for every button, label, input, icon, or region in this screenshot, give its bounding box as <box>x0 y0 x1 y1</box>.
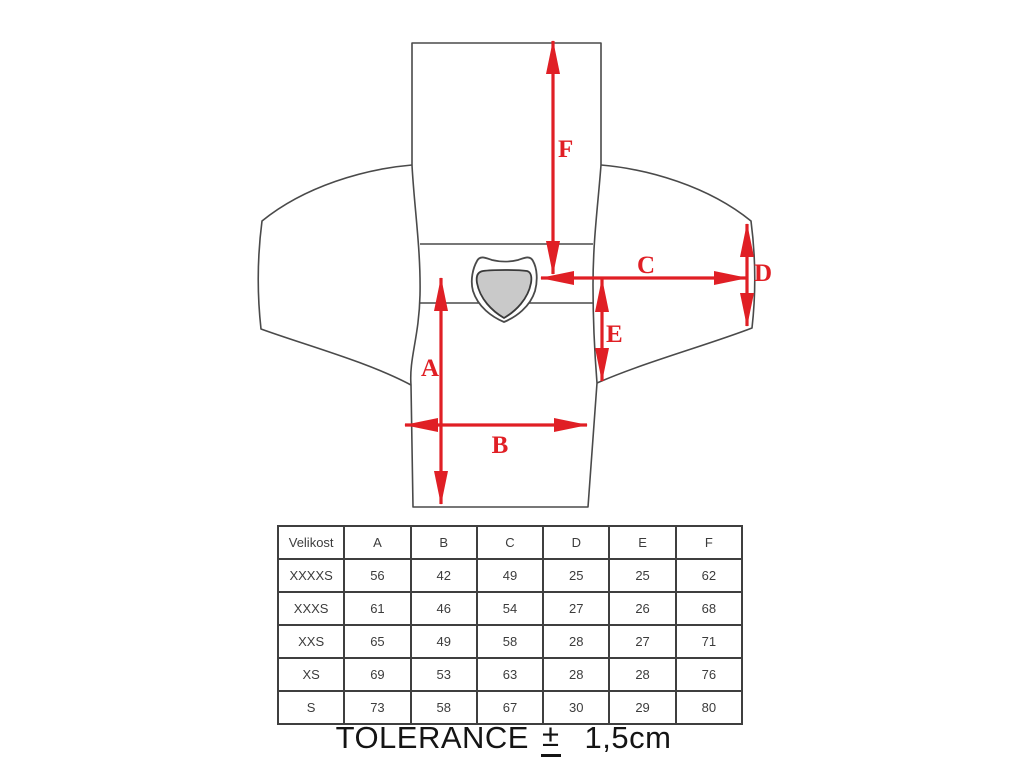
value-cell: 56 <box>344 559 410 592</box>
size-table-header-cell: E <box>609 526 675 559</box>
left-sleeve <box>258 165 412 385</box>
value-cell: 58 <box>477 625 543 658</box>
value-cell: 68 <box>676 592 742 625</box>
value-cell: 53 <box>411 658 477 691</box>
size-table-row: XXS 65 49 58 28 27 71 <box>278 625 742 658</box>
value-cell: 26 <box>609 592 675 625</box>
size-table-header-cell: Velikost <box>278 526 344 559</box>
value-cell: 28 <box>543 658 609 691</box>
size-cell: XXXXS <box>278 559 344 592</box>
value-cell: 49 <box>477 559 543 592</box>
value-cell: 27 <box>543 592 609 625</box>
right-sleeve <box>597 165 755 383</box>
measure-label-c: C <box>637 252 655 279</box>
measure-label-b: B <box>492 432 509 459</box>
tolerance-value: 1,5cm <box>585 720 672 756</box>
value-cell: 69 <box>344 658 410 691</box>
value-cell: 54 <box>477 592 543 625</box>
size-table-header-cell: B <box>411 526 477 559</box>
size-table-header-cell: F <box>676 526 742 559</box>
value-cell: 28 <box>543 625 609 658</box>
tolerance-note: TOLERANCE ± 1,5cm <box>0 720 1007 757</box>
value-cell: 46 <box>411 592 477 625</box>
measure-label-f: F <box>558 136 573 163</box>
measure-label-e: E <box>606 321 623 348</box>
size-cell: XXXS <box>278 592 344 625</box>
size-chart-image: F A B C D E Velikost A B C D E F XXXXS 5… <box>0 0 1024 768</box>
value-cell: 62 <box>676 559 742 592</box>
size-table-row: XS 69 53 63 28 28 76 <box>278 658 742 691</box>
size-table-header-cell: D <box>543 526 609 559</box>
value-cell: 28 <box>609 658 675 691</box>
measure-label-d: D <box>754 260 772 287</box>
value-cell: 65 <box>344 625 410 658</box>
value-cell: 76 <box>676 658 742 691</box>
value-cell: 71 <box>676 625 742 658</box>
tolerance-label: TOLERANCE <box>336 720 529 756</box>
size-table-header-cell: C <box>477 526 543 559</box>
size-cell: XXS <box>278 625 344 658</box>
size-table-row: XXXS 61 46 54 27 26 68 <box>278 592 742 625</box>
size-table-row: XXXXS 56 42 49 25 25 62 <box>278 559 742 592</box>
size-table: Velikost A B C D E F XXXXS 56 42 49 25 2… <box>277 525 743 725</box>
size-cell: XS <box>278 658 344 691</box>
size-table-header-row: Velikost A B C D E F <box>278 526 742 559</box>
value-cell: 63 <box>477 658 543 691</box>
size-table-header-cell: A <box>344 526 410 559</box>
measure-label-a: A <box>421 355 439 382</box>
value-cell: 61 <box>344 592 410 625</box>
value-cell: 49 <box>411 625 477 658</box>
value-cell: 25 <box>609 559 675 592</box>
plus-minus-sign: ± <box>541 720 561 757</box>
value-cell: 42 <box>411 559 477 592</box>
value-cell: 25 <box>543 559 609 592</box>
value-cell: 27 <box>609 625 675 658</box>
